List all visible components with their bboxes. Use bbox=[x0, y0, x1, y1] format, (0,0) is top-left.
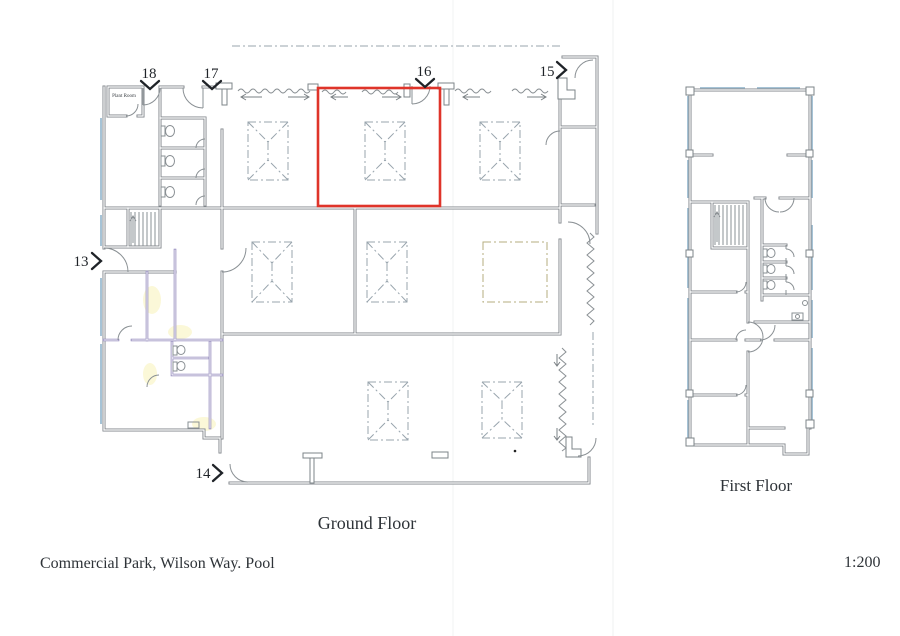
marker-18-label: 18 bbox=[142, 66, 157, 82]
marker-16: 16 bbox=[416, 64, 434, 87]
ground-floor-caption: Ground Floor bbox=[287, 513, 447, 534]
scanned-floor-plan-page: 18 17 16 15 13 14 bbox=[0, 0, 900, 636]
marker-15: 15 bbox=[540, 62, 567, 80]
marker-14: 14 bbox=[196, 465, 223, 482]
drawing-title: Commercial Park, Wilson Way. Pool bbox=[40, 555, 275, 573]
plant-room-label: Plant Room bbox=[109, 94, 139, 100]
marker-13-label: 13 bbox=[74, 254, 89, 270]
direction-arrows bbox=[241, 94, 546, 100]
marker-17-label: 17 bbox=[204, 66, 220, 82]
scale-label: 1:200 bbox=[844, 554, 894, 572]
stairs bbox=[714, 205, 743, 245]
chevron-down-icon bbox=[416, 79, 434, 87]
column-dot bbox=[514, 450, 517, 453]
toilet-fixtures bbox=[161, 126, 199, 429]
ground-floor-plan: 18 17 16 15 13 14 bbox=[74, 46, 598, 483]
window-lines bbox=[688, 88, 812, 440]
marker-13: 13 bbox=[74, 253, 102, 270]
highlighted-unit-outline bbox=[318, 88, 440, 206]
toilet-fixtures bbox=[763, 249, 808, 321]
first-floor-caption: First Floor bbox=[686, 476, 826, 496]
first-floor-plan bbox=[686, 87, 814, 454]
wall-piers bbox=[216, 78, 581, 483]
roof-opening-outline bbox=[483, 242, 547, 302]
chevron-right-icon bbox=[92, 253, 101, 269]
marker-15-label: 15 bbox=[540, 64, 555, 80]
shutter-openings bbox=[238, 89, 548, 94]
corner-piers bbox=[686, 87, 814, 446]
marker-16-label: 16 bbox=[417, 64, 433, 80]
stairs bbox=[130, 212, 155, 246]
marker-14-label: 14 bbox=[196, 466, 212, 482]
chevron-right-icon bbox=[213, 465, 222, 481]
skylight-symbols bbox=[248, 122, 522, 440]
chevron-right-icon bbox=[557, 62, 566, 78]
